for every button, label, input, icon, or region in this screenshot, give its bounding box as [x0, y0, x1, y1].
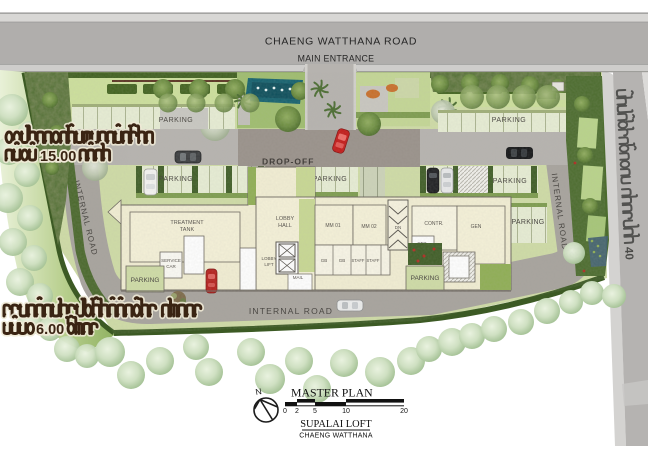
svg-text:CHAENG WATTHANA: CHAENG WATTHANA: [299, 433, 373, 440]
svg-text:10: 10: [342, 408, 350, 415]
svg-text:20: 20: [400, 408, 408, 415]
svg-text:40: 40: [622, 247, 635, 260]
svg-text:6.00: 6.00: [36, 322, 64, 338]
svg-text:2: 2: [295, 408, 299, 415]
svg-text:SUPALAI LOFT: SUPALAI LOFT: [300, 419, 372, 430]
svg-text:5: 5: [313, 408, 317, 415]
svg-text:MASTER PLAN: MASTER PLAN: [291, 386, 373, 400]
svg-text:CHAENG WATTHANA ROAD: CHAENG WATTHANA ROAD: [265, 36, 417, 48]
svg-text:MAIN ENTRANCE: MAIN ENTRANCE: [298, 54, 375, 64]
svg-text:0: 0: [283, 408, 287, 415]
svg-text:15.00: 15.00: [40, 149, 76, 165]
